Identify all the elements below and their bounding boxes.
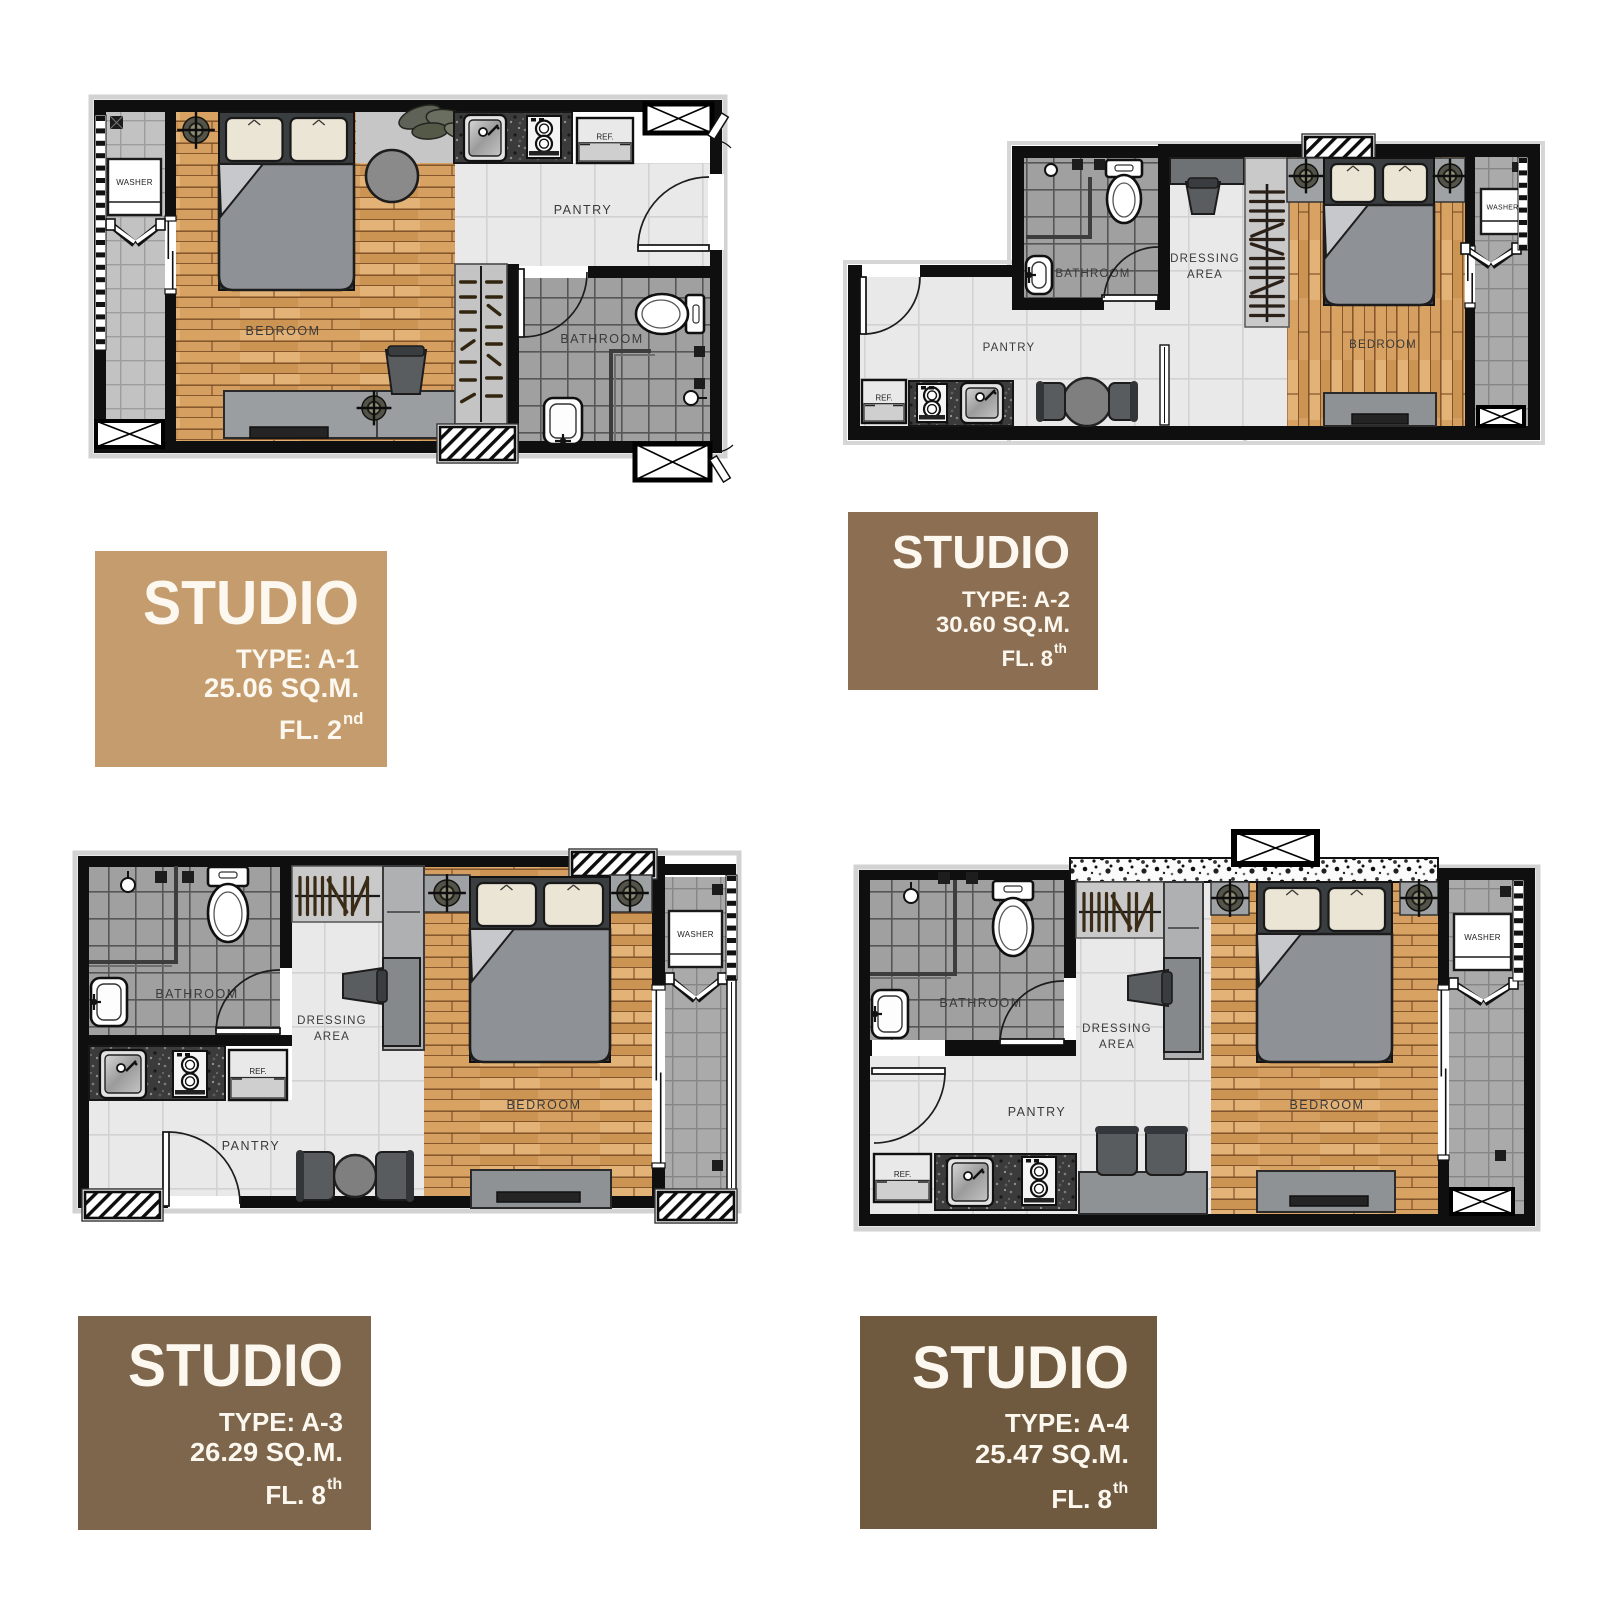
svg-text:BATHROOM: BATHROOM [939,996,1022,1010]
svg-text:TYPE: A-3: TYPE: A-3 [219,1407,343,1437]
svg-text:BATHROOM: BATHROOM [1055,268,1130,280]
svg-text:FL. 2: FL. 2 [279,715,342,745]
svg-text:BEDROOM: BEDROOM [1349,339,1417,351]
svg-text:AREA: AREA [1099,1039,1135,1051]
svg-text:FL. 8: FL. 8 [265,1480,326,1510]
svg-text:AREA: AREA [1187,269,1223,281]
svg-text:REF.: REF. [249,1067,266,1076]
svg-text:PANTRY: PANTRY [1008,1105,1067,1119]
svg-text:STUDIO: STUDIO [143,569,359,638]
svg-text:REF.: REF. [875,394,892,403]
svg-text:REF.: REF. [894,1170,911,1179]
svg-text:WASHER: WASHER [677,930,714,939]
svg-text:th: th [327,1475,342,1493]
svg-text:DRESSING: DRESSING [1170,253,1240,265]
svg-text:BEDROOM: BEDROOM [506,1098,581,1112]
svg-text:STUDIO: STUDIO [892,526,1070,578]
svg-text:REF.: REF. [596,133,613,142]
svg-text:WASHER: WASHER [116,178,153,187]
svg-text:TYPE: A-2: TYPE: A-2 [962,587,1070,612]
svg-text:30.60 SQ.M.: 30.60 SQ.M. [936,612,1070,637]
svg-text:BATHROOM: BATHROOM [560,332,643,346]
svg-text:nd: nd [343,709,363,728]
svg-text:WASHER: WASHER [1464,933,1501,942]
svg-text:TYPE: A-4: TYPE: A-4 [1005,1408,1130,1438]
svg-text:PANTRY: PANTRY [222,1139,281,1153]
svg-text:DRESSING: DRESSING [297,1015,367,1027]
svg-text:26.29 SQ.M.: 26.29 SQ.M. [190,1437,343,1467]
svg-text:FL. 8: FL. 8 [1051,1484,1112,1514]
svg-text:STUDIO: STUDIO [912,1334,1129,1401]
svg-text:STUDIO: STUDIO [128,1332,343,1399]
svg-text:th: th [1054,641,1067,656]
svg-text:th: th [1113,1479,1128,1497]
svg-text:AREA: AREA [314,1031,350,1043]
svg-text:PANTRY: PANTRY [983,342,1036,354]
svg-text:25.06 SQ.M.: 25.06 SQ.M. [204,673,359,703]
svg-text:DRESSING: DRESSING [1082,1023,1152,1035]
svg-text:25.47 SQ.M.: 25.47 SQ.M. [975,1439,1129,1469]
svg-text:WASHER: WASHER [1487,205,1519,212]
svg-text:FL. 8: FL. 8 [1002,646,1053,671]
svg-text:PANTRY: PANTRY [554,203,613,217]
svg-text:TYPE: A-1: TYPE: A-1 [236,644,359,674]
svg-text:BEDROOM: BEDROOM [1289,1098,1364,1112]
svg-text:BEDROOM: BEDROOM [245,324,320,338]
